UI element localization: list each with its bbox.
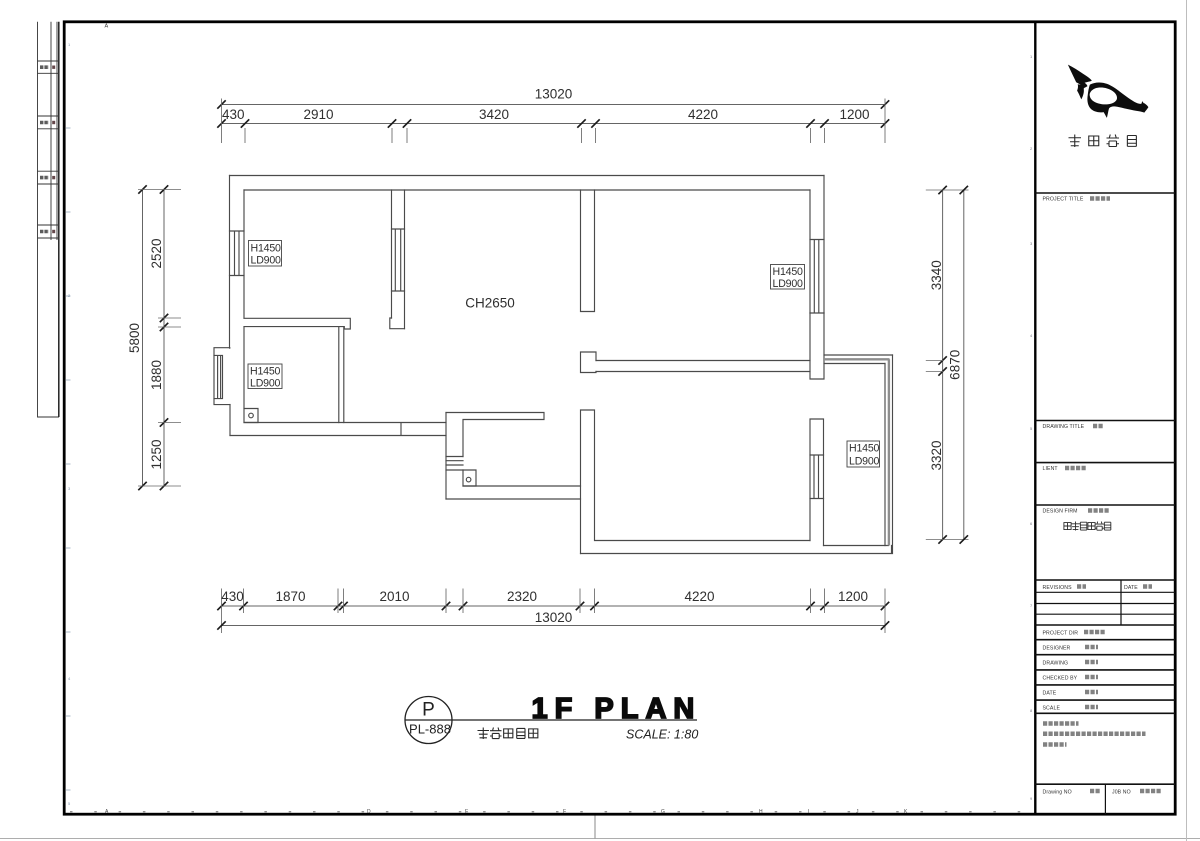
svg-text:3320: 3320 xyxy=(929,440,944,470)
svg-text:2320: 2320 xyxy=(507,589,537,604)
svg-text:13020: 13020 xyxy=(535,610,573,625)
svg-text:PL-888: PL-888 xyxy=(409,722,451,737)
svg-text:PROJECT TITLE: PROJECT TITLE xyxy=(1043,197,1084,203)
svg-text:DESIGNER: DESIGNER xyxy=(1043,646,1071,652)
svg-text:F: F xyxy=(563,809,566,815)
svg-text:2520: 2520 xyxy=(149,238,164,268)
svg-text:DESIGN FIRM: DESIGN FIRM xyxy=(1043,509,1078,515)
svg-text:REVISIONS: REVISIONS xyxy=(1043,585,1073,591)
svg-text:Drawing NO: Drawing NO xyxy=(1043,790,1072,796)
svg-text:LD900: LD900 xyxy=(773,278,804,290)
svg-text:430: 430 xyxy=(221,589,244,604)
svg-text:1870: 1870 xyxy=(275,589,305,604)
svg-text:1880: 1880 xyxy=(149,360,164,390)
svg-text:PROJECT DIR: PROJECT DIR xyxy=(1043,631,1079,637)
svg-text:LIENT: LIENT xyxy=(1043,466,1059,472)
svg-text:4220: 4220 xyxy=(688,107,718,122)
svg-text:DRAWING TITLE: DRAWING TITLE xyxy=(1043,424,1085,430)
svg-text:430: 430 xyxy=(222,107,245,122)
svg-text:G: G xyxy=(661,809,665,815)
svg-text:DATE: DATE xyxy=(1043,691,1057,697)
svg-text:I: I xyxy=(808,809,809,815)
svg-text:5800: 5800 xyxy=(127,323,142,353)
svg-text:H1450: H1450 xyxy=(849,443,880,455)
svg-text:J0B NO: J0B NO xyxy=(1112,790,1131,796)
svg-text:2910: 2910 xyxy=(303,107,333,122)
svg-text:4220: 4220 xyxy=(684,589,714,604)
svg-text:1200: 1200 xyxy=(839,107,869,122)
svg-text:LD900: LD900 xyxy=(250,378,281,390)
svg-text:H1450: H1450 xyxy=(773,266,804,278)
svg-text:2010: 2010 xyxy=(379,589,409,604)
svg-text:13020: 13020 xyxy=(535,87,573,102)
svg-text:3340: 3340 xyxy=(929,260,944,290)
svg-text:H1450: H1450 xyxy=(250,366,281,378)
svg-text:LD900: LD900 xyxy=(251,255,282,267)
svg-text:SCALE: SCALE xyxy=(1043,706,1061,712)
svg-text:1250: 1250 xyxy=(149,439,164,469)
svg-text:6870: 6870 xyxy=(948,350,963,380)
svg-text:CHECKED BY: CHECKED BY xyxy=(1043,676,1078,682)
svg-text:DRAWING: DRAWING xyxy=(1043,661,1069,667)
svg-text:1F PLAN: 1F PLAN xyxy=(532,693,702,725)
svg-text:CH2650: CH2650 xyxy=(465,296,515,311)
svg-text:1200: 1200 xyxy=(838,589,868,604)
svg-text:SCALE: 1:80: SCALE: 1:80 xyxy=(626,728,698,742)
svg-text:DATE: DATE xyxy=(1124,585,1138,591)
svg-text:D: D xyxy=(367,809,371,815)
svg-text:A: A xyxy=(105,24,109,30)
svg-text:H: H xyxy=(759,809,763,815)
svg-text:3420: 3420 xyxy=(479,107,509,122)
svg-text:P: P xyxy=(422,700,435,721)
svg-text:LD900: LD900 xyxy=(849,456,880,468)
svg-text:H1450: H1450 xyxy=(251,243,282,255)
